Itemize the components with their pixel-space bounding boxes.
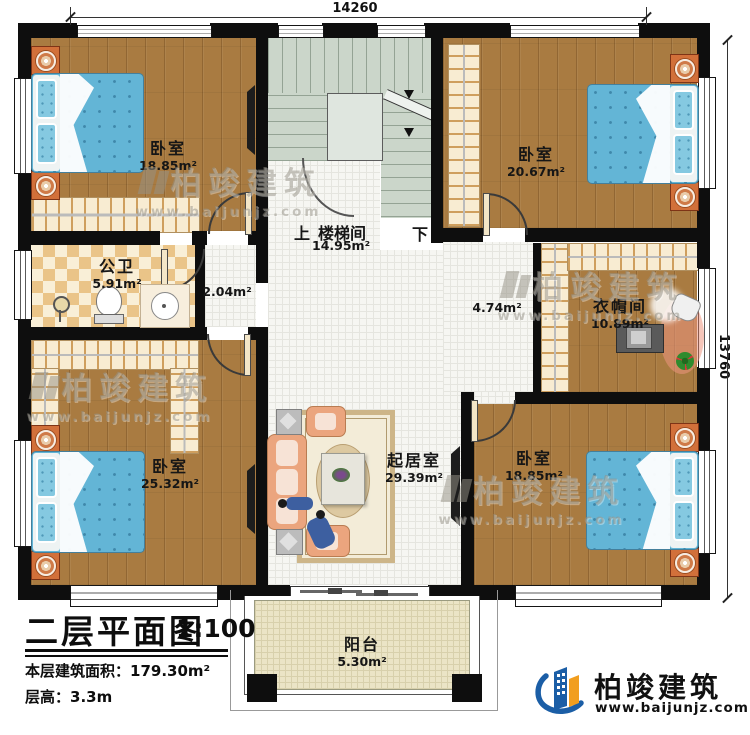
person-head — [278, 499, 287, 508]
window — [77, 25, 212, 38]
room-area: 5.91m² — [67, 276, 167, 291]
pillow — [673, 134, 694, 174]
sink-drain-icon — [162, 304, 166, 308]
window — [70, 585, 218, 607]
watermark: 柏竣建筑 www.baijunjz.com — [135, 158, 322, 220]
bed-blanket-fold — [60, 452, 94, 552]
nightstand — [31, 171, 60, 200]
person-head — [316, 510, 325, 519]
watermark-website: www.baijunjz.com — [438, 512, 625, 528]
stair-down-arrow-icon — [404, 128, 414, 137]
closet-bedroom-top-right — [448, 44, 480, 227]
wall-segment — [256, 243, 268, 283]
dimension-line-right — [727, 40, 728, 598]
watermark-company: 柏竣建筑 — [532, 262, 684, 307]
room-label-bedroom-bottom-left: 卧室 25.32m² — [110, 458, 230, 491]
room-label-balcony: 阳台 5.30m² — [307, 636, 417, 669]
stair-down-arrow-icon — [404, 90, 414, 99]
window — [698, 77, 716, 189]
floor-area-label: 本层建筑面积： — [25, 662, 130, 680]
sofa-cushion — [276, 469, 298, 495]
watermark: 柏竣建筑 www.baijunjz.com — [497, 262, 684, 324]
lamp-icon — [675, 553, 695, 573]
room-name: 卧室 — [476, 146, 596, 164]
door-leaf — [483, 193, 490, 236]
nightstand — [670, 423, 699, 452]
lamp-icon — [36, 430, 56, 450]
pillow — [36, 79, 57, 119]
tv — [247, 85, 255, 155]
company-logo-icon — [534, 664, 590, 718]
bed-blanket-fold — [636, 452, 670, 549]
watermark-logo-icon — [29, 372, 49, 399]
sofa-cushion — [276, 440, 298, 466]
person-figure — [286, 497, 313, 510]
floor-height-label: 层高： — [25, 688, 70, 706]
watermark-logo-icon — [441, 475, 461, 502]
wall-segment — [18, 231, 160, 245]
company-website: www.baijunjz.com — [595, 700, 749, 716]
balcony-column — [452, 674, 482, 702]
shower-head-icon — [53, 296, 70, 313]
room-name: 公卫 — [67, 258, 167, 276]
watermark: 柏竣建筑 www.baijunjz.com — [26, 363, 213, 425]
bed-top-right — [587, 84, 699, 184]
pillow — [673, 501, 694, 541]
window — [698, 450, 716, 554]
floor-height-line: 层高：3.3m — [25, 686, 112, 707]
wall-segment — [431, 38, 443, 243]
watermark-website: www.baijunjz.com — [135, 204, 322, 220]
lamp-icon — [675, 187, 695, 207]
floor-area-line: 本层建筑面积：179.30m² — [25, 660, 210, 681]
sofa-main — [267, 434, 307, 530]
nightstand — [31, 425, 60, 454]
window — [14, 78, 32, 174]
window — [510, 25, 640, 38]
title-underline — [25, 655, 228, 657]
dimension-top: 14260 — [300, 1, 410, 16]
lamp-icon — [675, 428, 695, 448]
lamp-icon — [675, 59, 695, 79]
window — [377, 25, 426, 38]
lamp-icon — [36, 176, 56, 196]
nightstand — [670, 182, 699, 211]
side-table — [276, 529, 303, 555]
watermark-website: www.baijunjz.com — [26, 409, 213, 425]
pillow — [673, 457, 694, 497]
room-area: 20.67m² — [476, 164, 596, 179]
lamp-icon — [36, 51, 56, 71]
stair-landing-void — [327, 93, 383, 161]
watermark-company: 柏竣建筑 — [473, 466, 625, 511]
potted-plant-icon — [676, 352, 694, 370]
window — [14, 440, 32, 547]
wall-segment — [192, 231, 207, 245]
dimension-line-top — [70, 17, 647, 18]
logo-building-orange — [569, 675, 579, 707]
logo-building-blue — [554, 667, 567, 710]
floor-area-value: 179.30m² — [130, 662, 210, 680]
wall-segment — [18, 585, 70, 600]
room-name: 卧室 — [108, 140, 228, 158]
watermark-company: 柏竣建筑 — [170, 158, 322, 203]
toilet-base — [94, 314, 124, 324]
wall-segment — [18, 23, 31, 78]
plan-scale: 1:100 — [176, 614, 256, 643]
floor-height-value: 3.3m — [70, 688, 112, 706]
bed-pillows — [670, 453, 697, 548]
pillow — [36, 123, 57, 163]
pillow — [36, 502, 57, 543]
watermark-company: 柏竣建筑 — [61, 363, 213, 408]
wall-segment — [515, 392, 697, 404]
pillow — [36, 457, 57, 498]
window — [14, 250, 32, 320]
wall-segment — [660, 585, 710, 600]
bed-pillows — [33, 453, 60, 551]
wall-segment — [210, 23, 278, 38]
bed-pillows — [670, 86, 697, 182]
window — [515, 585, 662, 607]
wall-segment — [424, 23, 510, 38]
nightstand — [670, 548, 699, 577]
room-label-bathroom: 公卫 5.91m² — [67, 258, 167, 291]
title-underline — [25, 649, 228, 652]
room-label-corridor: 2.04m² — [197, 284, 257, 299]
shower-stem — [59, 310, 61, 322]
sofa-cushion — [315, 413, 336, 430]
watermark-logo-icon — [500, 271, 520, 298]
stair-treads-top — [268, 38, 431, 93]
room-name: 卧室 — [474, 450, 594, 468]
floor-plan-canvas: 14260 13760 卧室 18.85m² 卧室 20.67m² 公卫 5.9… — [0, 0, 750, 735]
wall-segment — [443, 228, 483, 242]
wall-segment — [322, 23, 377, 38]
lamp-icon — [36, 556, 56, 576]
bed-blanket-fold — [636, 85, 670, 183]
watermark: 柏竣建筑 www.baijunjz.com — [438, 466, 625, 528]
room-label-bedroom-top-right: 卧室 20.67m² — [476, 146, 596, 179]
door-leaf — [471, 400, 478, 442]
door-leaf — [244, 334, 251, 376]
side-table — [276, 409, 302, 435]
watermark-website: www.baijunjz.com — [497, 308, 684, 324]
dimension-right: 13760 — [716, 312, 731, 402]
room-name: 卧室 — [110, 458, 230, 476]
nightstand — [670, 54, 699, 83]
side-table-top — [279, 532, 297, 550]
room-area: 25.32m² — [110, 476, 230, 491]
watermark-logo-icon — [138, 167, 158, 194]
tv — [247, 464, 255, 534]
nightstand — [31, 551, 60, 580]
armchair — [306, 406, 346, 437]
monitor-screen — [631, 331, 646, 344]
stair-down-label: 下 — [412, 221, 428, 245]
room-name: 阳台 — [307, 636, 417, 654]
side-table-top — [280, 413, 297, 430]
wall-segment — [525, 228, 697, 242]
wall-segment — [18, 327, 207, 340]
wall-segment — [248, 327, 268, 340]
room-area-stairwell: 14.95m² — [312, 238, 370, 253]
table-flowers — [332, 468, 350, 482]
balcony-column — [247, 674, 277, 702]
stair-treads-left — [268, 93, 327, 161]
stair-up-label: 上 — [294, 220, 310, 244]
bed-pillows — [33, 75, 60, 171]
room-area: 5.30m² — [307, 654, 417, 669]
window — [278, 25, 324, 38]
pillow — [673, 90, 694, 130]
nightstand — [31, 46, 60, 75]
bed-blanket-fold — [60, 74, 94, 172]
room-area: 2.04m² — [197, 284, 257, 299]
